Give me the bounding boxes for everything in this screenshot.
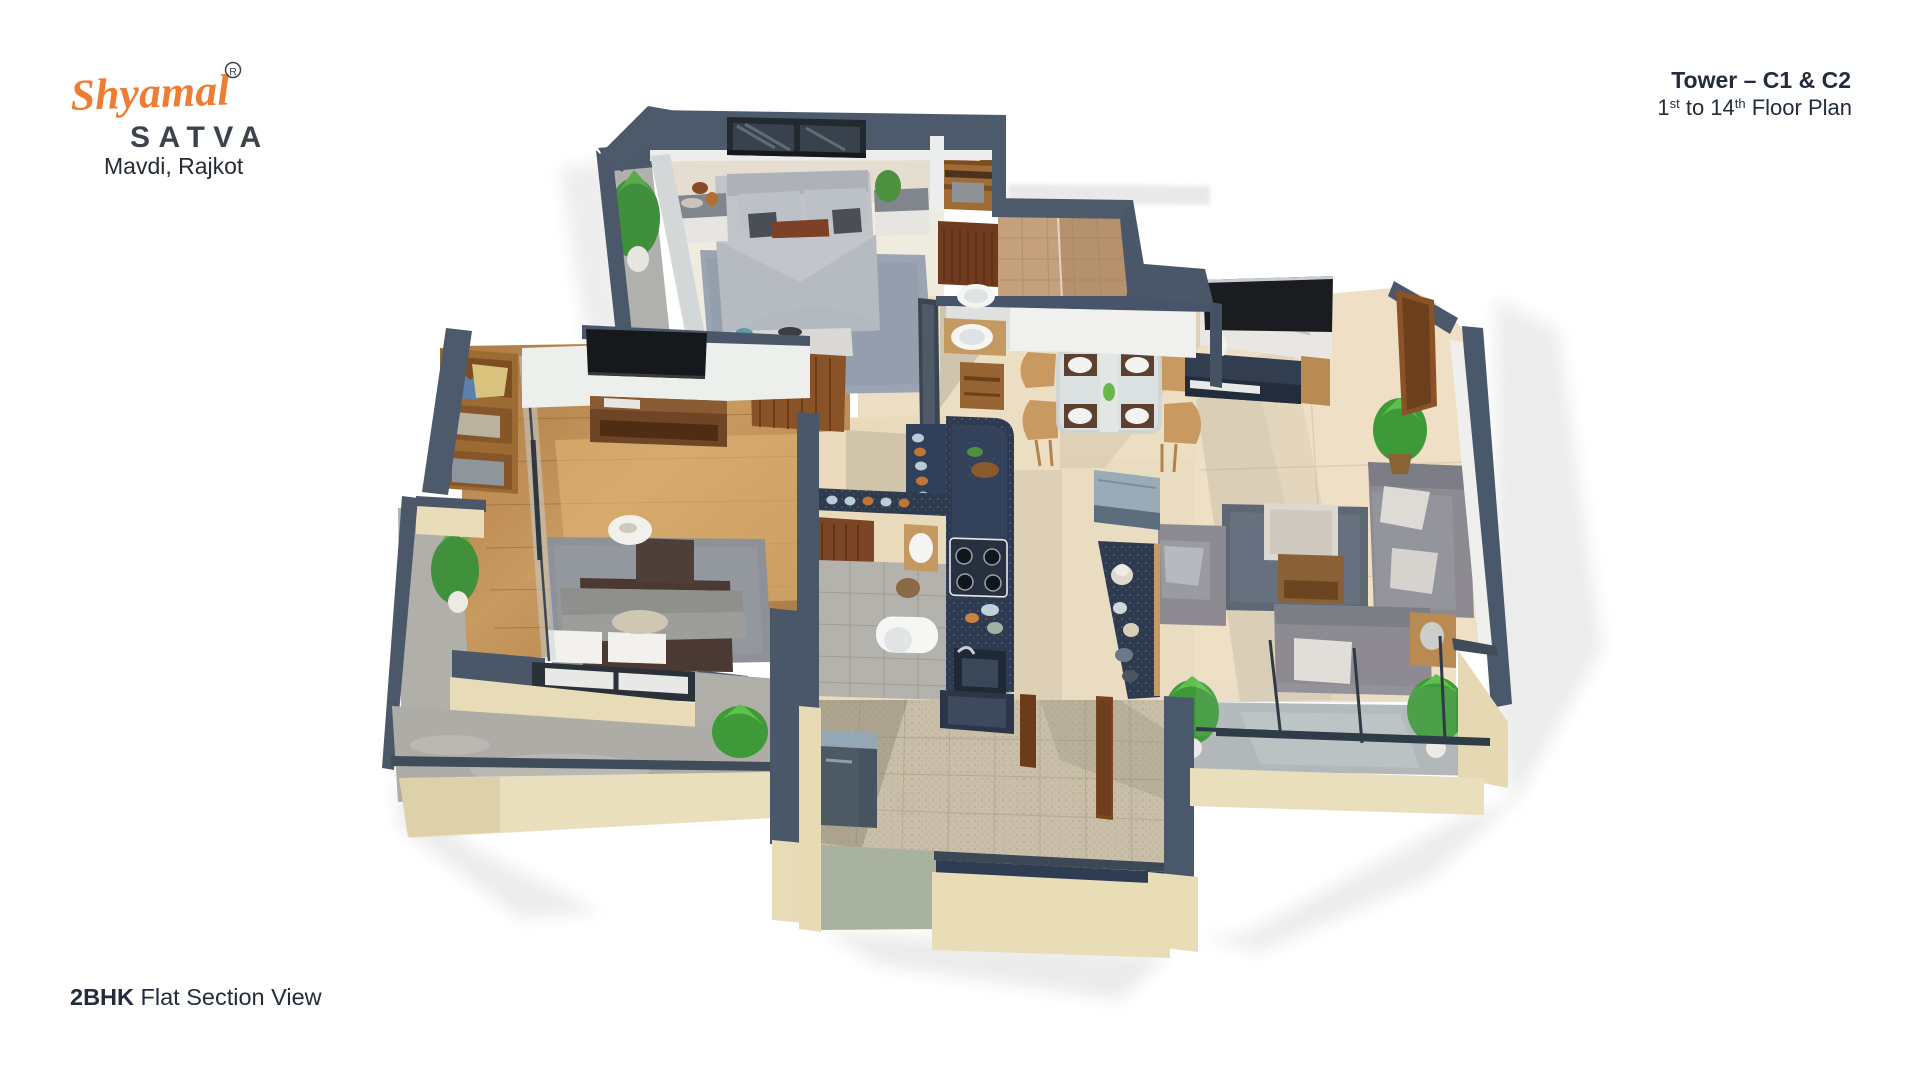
svg-text:2BHK Flat Section View: 2BHK Flat Section View	[70, 984, 323, 1010]
svg-text:Shyamal: Shyamal	[70, 65, 231, 120]
svg-text:Tower – C1 & C2: Tower – C1 & C2	[1671, 67, 1851, 93]
svg-text:1st to 14th Floor Plan: 1st to 14th Floor Plan	[1657, 95, 1852, 120]
svg-text:Mavdi, Rajkot: Mavdi, Rajkot	[104, 153, 244, 179]
svg-text:R: R	[229, 66, 237, 78]
svg-text:SATVA: SATVA	[130, 121, 270, 154]
